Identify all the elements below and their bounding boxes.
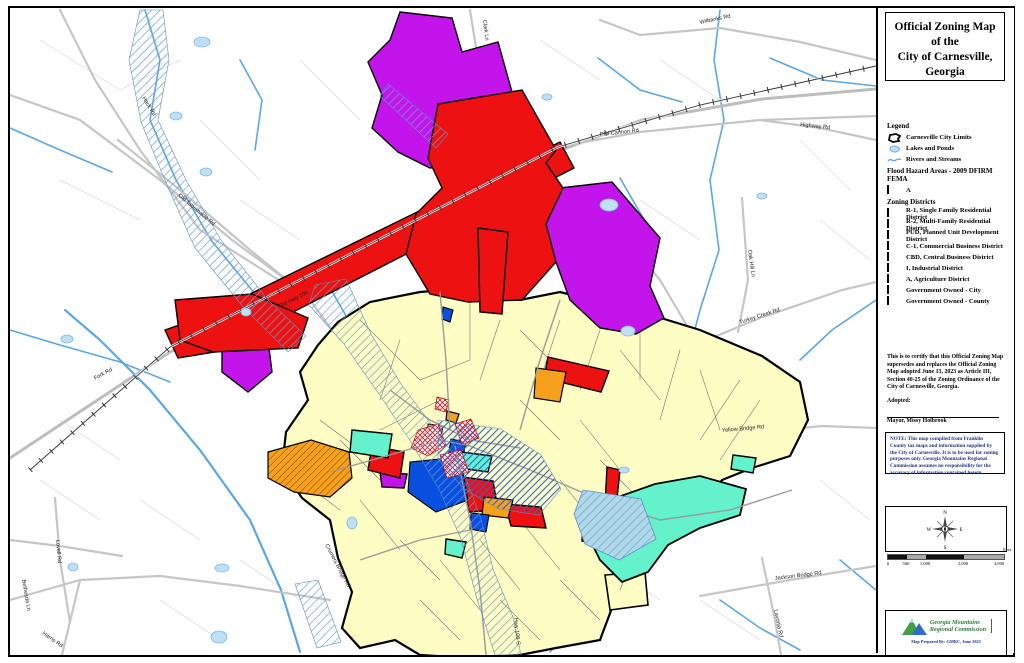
scale-labels: 0 500 1,000 2,000 3,000 (887, 561, 1009, 568)
legend-item-c1: C-1, Commercial Business District (887, 241, 1009, 252)
gov-city-swatch (887, 286, 902, 295)
svg-text:N: N (943, 511, 947, 516)
legend: Legend Carnesville City Limits Lakes and… (887, 120, 1009, 307)
title-line-2: of the (886, 35, 1004, 50)
legend-item-pud: PUD, Planned Unit Development District (887, 230, 1009, 241)
mayor-name: Mayor, Missy Holbrook (887, 418, 1009, 426)
compass-rose: N E S W (886, 507, 1004, 549)
city-limits-icon (887, 133, 902, 142)
legend-label: Government Owned - County (906, 298, 990, 305)
legend-item-gov-county: Government Owned - County (887, 296, 1009, 307)
rivers-icon (887, 155, 902, 164)
map-title: Official Zoning Map of the City of Carne… (885, 12, 1005, 81)
legend-label: CBD, Central Business District (906, 254, 994, 261)
svg-text:S: S (944, 546, 947, 549)
title-line-3: City of Carnesville, Georgia (886, 50, 1004, 80)
logo-box: Georgia Mountains Regional Commission Ma… (885, 610, 1007, 656)
legend-label: Lakes and Ponds (906, 145, 954, 152)
svg-text:E: E (959, 528, 962, 533)
legend-heading: Legend (887, 122, 1009, 130)
cbd-swatch (887, 253, 902, 262)
svg-text:W: W (927, 528, 932, 533)
r1-swatch (887, 209, 902, 218)
map-canvas: Wilbanks Rd Clark Ln Hack Rd Phil Cannon… (10, 8, 876, 655)
legend-item-industrial: I, Industrial District (887, 263, 1009, 274)
note-text: NOTE: This map compiled from Franklin Co… (890, 436, 998, 476)
adopted-label: Adopted: (887, 398, 1009, 406)
legend-label: C-1, Commercial Business District (906, 243, 1003, 250)
legend-label: Carnesville City Limits (906, 134, 972, 141)
legend-item-gov-city: Government Owned - City (887, 285, 1009, 296)
legend-label: A (906, 187, 911, 194)
map-credit: Map Prepared By: GMRC, June 2023 (886, 639, 1006, 644)
legend-label: A, Agriculture District (906, 276, 969, 283)
lakes-icon (887, 144, 902, 153)
scale-bar-graphic (887, 554, 1005, 560)
title-line-1: Official Zoning Map (886, 20, 1004, 35)
legend-item-lakes: Lakes and Ponds (887, 143, 1009, 154)
certification-text: This is to certify that this Official Zo… (887, 354, 1009, 392)
gov-county-swatch (887, 297, 902, 306)
legend-item-cbd: CBD, Central Business District (887, 252, 1009, 263)
c1-swatch (887, 242, 902, 251)
legend-label: Rivers and Streams (906, 156, 961, 163)
legend-item-rivers: Rivers and Streams (887, 154, 1009, 165)
gmrc-logo-text: Georgia Mountains Regional Commission (930, 619, 992, 633)
flood-heading: Flood Hazard Areas - 2009 DFIRM FEMA (887, 167, 1009, 183)
legend-label: Government Owned - City (906, 287, 981, 294)
zoning-map-page: Wilbanks Rd Clark Ln Hack Rd Phil Cannon… (0, 0, 1024, 663)
compass-box: N E S W (885, 506, 1007, 552)
legend-item-flood-a: A (887, 185, 1009, 196)
legend-item-city-limits: Carnesville City Limits (887, 132, 1009, 143)
districts-heading: Zoning Districts (887, 198, 1009, 206)
legend-label: PUD, Planned Unit Development District (906, 229, 1009, 243)
gmrc-logo-icon (900, 615, 930, 637)
agriculture-swatch (887, 275, 902, 284)
r2-swatch (887, 220, 902, 229)
legend-item-agriculture: A, Agriculture District (887, 274, 1009, 285)
sidebar: Official Zoning Map of the City of Carne… (876, 8, 1014, 653)
legend-label: I, Industrial District (906, 265, 963, 272)
pud-swatch (887, 231, 902, 240)
note-box: NOTE: This map compiled from Franklin Co… (885, 432, 1005, 474)
scale-unit: Feet (1003, 547, 1011, 552)
scale-bar: Feet 0 500 1,000 2,000 3,000 (887, 554, 1009, 568)
flood-swatch (887, 186, 902, 195)
industrial-swatch (887, 264, 902, 273)
